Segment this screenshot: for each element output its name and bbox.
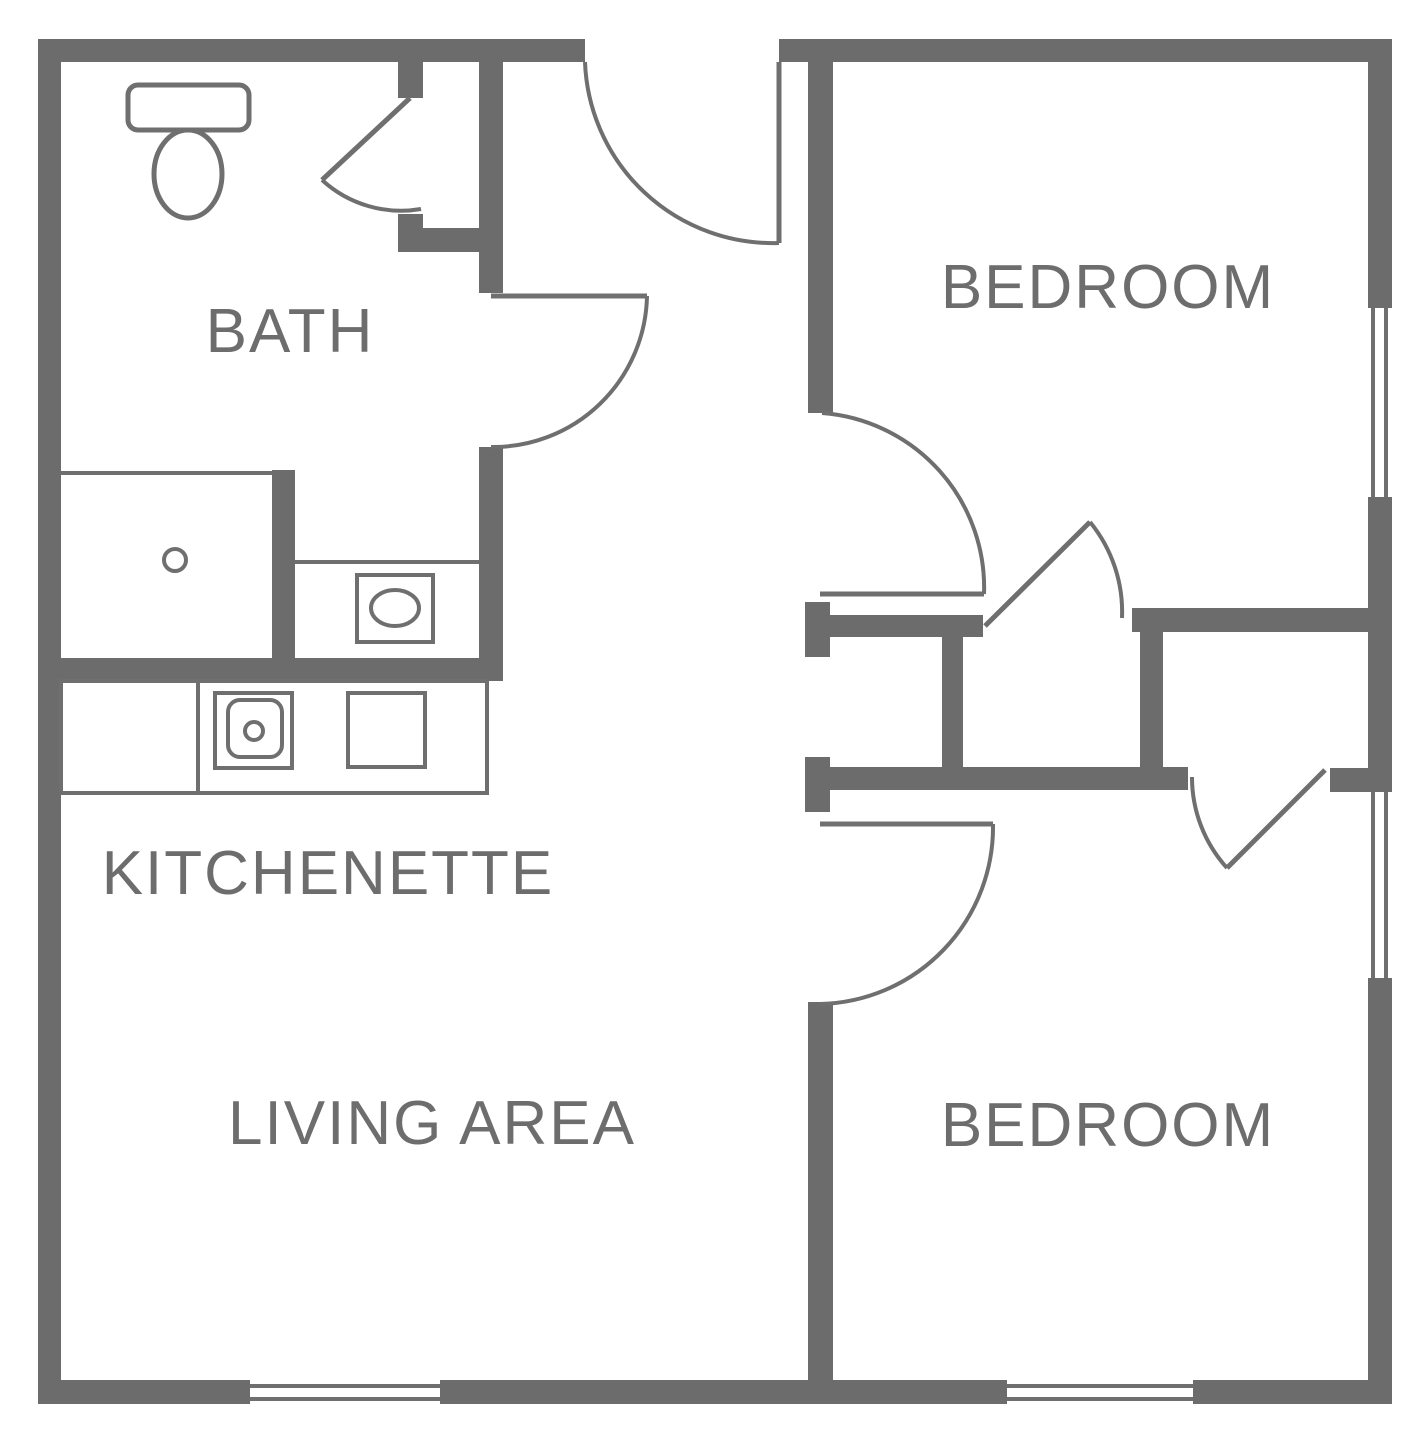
wall-bottom-2: [440, 1380, 1007, 1404]
closet2-door-arc: [1192, 777, 1227, 868]
closet2-south-stub: [1330, 768, 1368, 792]
entry-door-arc: [585, 62, 779, 243]
toilet-tank: [128, 85, 249, 130]
kitchen-sink-drain: [245, 722, 263, 740]
bedroom1-west-wall: [808, 62, 833, 413]
bath-closet-door-arc: [322, 180, 421, 211]
wall-top-left: [38, 39, 585, 62]
bath-closet-jamb-upper: [398, 62, 423, 98]
shower-east-wall: [272, 470, 295, 658]
room-label-bath: BATH: [206, 297, 375, 366]
bedroom2-west-wall: [808, 1002, 833, 1380]
stove-burner: [348, 693, 425, 767]
closet2-door-leaf: [1227, 770, 1325, 868]
toilet-bowl: [154, 130, 222, 218]
hall-closet-south-bar: [830, 767, 1188, 790]
bath-door-arc: [491, 296, 647, 447]
closet1-door-arc: [1090, 522, 1122, 618]
bedroom2-door-arc: [820, 824, 993, 1004]
bedroom1-door-arc: [822, 413, 984, 594]
closet-north-bar-right: [1132, 608, 1368, 632]
hall-closet-north-bar: [805, 615, 983, 637]
room-label-kitchenette: KITCHENETTE: [102, 839, 555, 908]
fixtures-layer: [61, 85, 487, 793]
floor-plan-svg: BATHKITCHENETTELIVING AREABEDROOMBEDROOM: [0, 0, 1416, 1434]
wall-right-2: [1368, 497, 1392, 792]
room-label-bedroom-top: BEDROOM: [941, 253, 1275, 322]
closet1-west-wall: [942, 637, 963, 767]
closet1-door-leaf: [985, 522, 1090, 626]
shower-drain: [164, 549, 186, 571]
wall-right-1: [1368, 39, 1392, 308]
room-label-living-area: LIVING AREA: [228, 1089, 636, 1158]
wall-top-right: [779, 39, 1392, 62]
hall-closet-south-cap: [805, 757, 830, 812]
room-label-bedroom-bottom: BEDROOM: [941, 1091, 1275, 1160]
hall-bath-wall-lower: [479, 447, 503, 681]
vanity-sink-basin: [371, 590, 419, 626]
wall-bottom-1: [38, 1380, 250, 1404]
wall-left: [38, 39, 61, 1404]
bath-south-wall: [38, 658, 503, 681]
bath-closet-door-leaf: [322, 98, 410, 180]
wall-bottom-3: [1193, 1380, 1392, 1404]
closet-divider-wall: [1140, 632, 1163, 768]
wall-right-3: [1368, 978, 1392, 1404]
hall-bath-wall-upper: [479, 62, 503, 293]
floor-plan: BATHKITCHENETTELIVING AREABEDROOMBEDROOM: [0, 0, 1416, 1434]
